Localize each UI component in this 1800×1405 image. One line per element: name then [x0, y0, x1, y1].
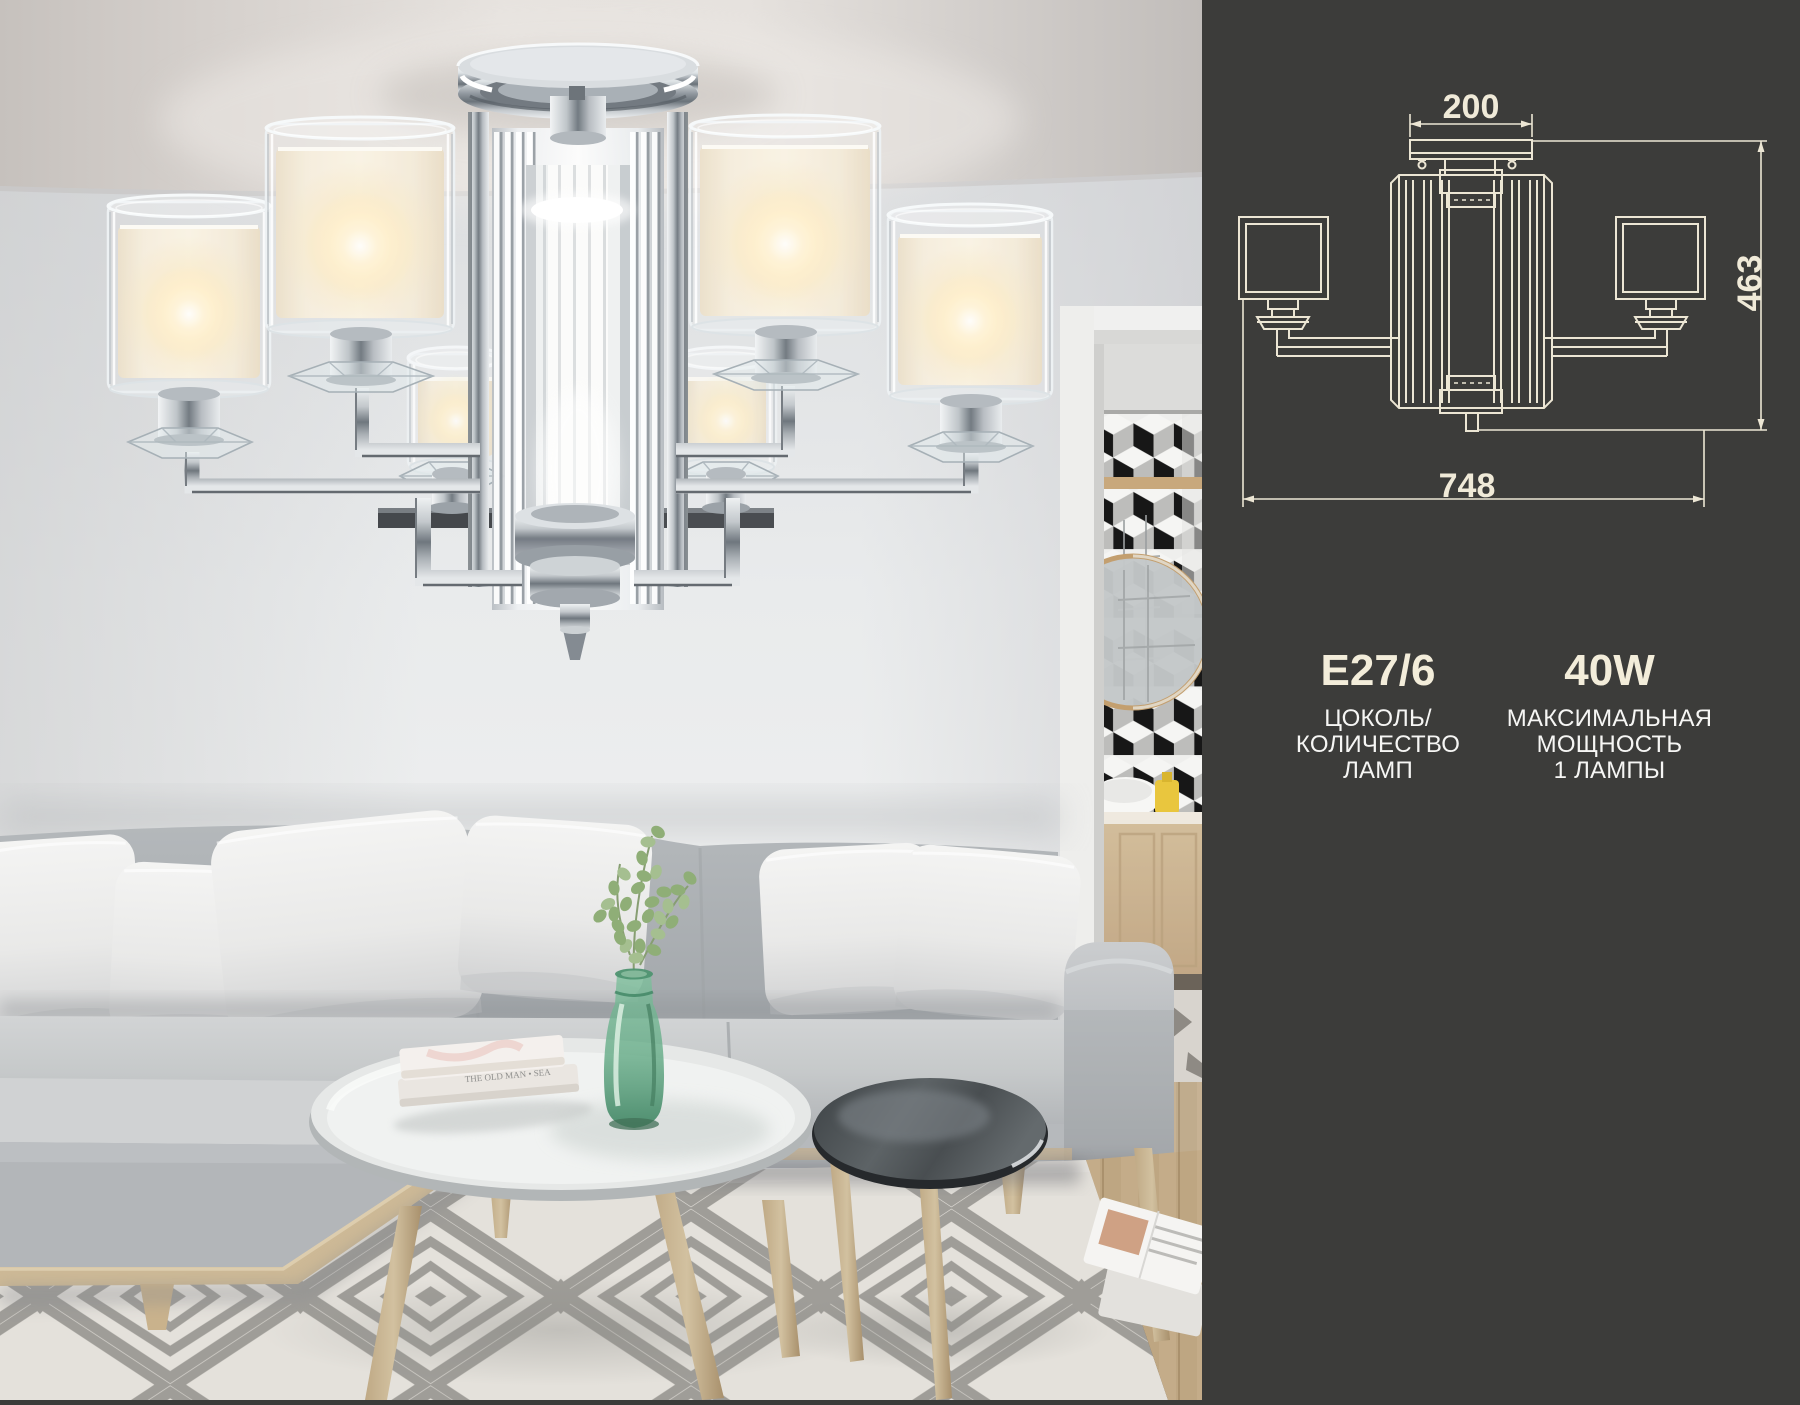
svg-text:463: 463: [1731, 255, 1769, 312]
svg-text:748: 748: [1439, 467, 1496, 505]
svg-text:200: 200: [1443, 88, 1500, 126]
